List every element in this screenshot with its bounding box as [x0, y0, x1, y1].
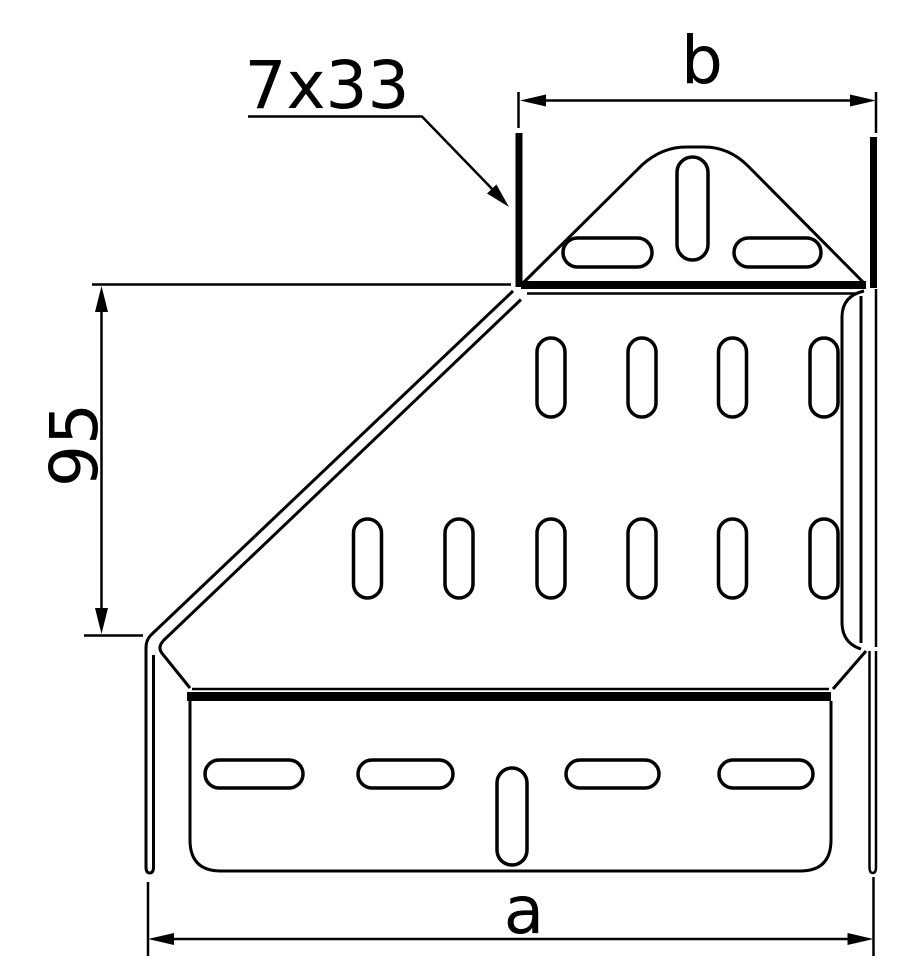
arrowhead-up-icon [95, 286, 108, 312]
callout-leader-line [248, 117, 497, 195]
bottom-flange [187, 689, 831, 871]
right-corner-joint [833, 651, 866, 689]
slot [719, 519, 747, 598]
arrowhead-left-icon [148, 933, 174, 945]
arrowhead-right-icon [848, 933, 874, 945]
dimension-slope-height: 95 [36, 285, 511, 636]
mounting-slot-horizontal [358, 760, 453, 788]
mounting-slot-horizontal [563, 238, 652, 267]
callout-slot-size-label: 7x33 [244, 47, 409, 124]
mounting-slot-horizontal [734, 238, 821, 267]
dimension-top-width-label: b [681, 22, 723, 99]
mounting-slot-horizontal [205, 760, 303, 788]
right-end-rail-edge [870, 651, 877, 873]
slot [445, 519, 473, 598]
slot [628, 519, 656, 598]
dimension-bottom-width-label: a [504, 872, 544, 949]
mounting-slot-horizontal [566, 760, 659, 788]
dimension-top-width: b [519, 22, 877, 133]
mounting-slot-vertical [677, 157, 708, 260]
perforation-row-lower [354, 519, 839, 598]
arrowhead-left-icon [520, 95, 546, 107]
slot [719, 338, 747, 417]
slot [810, 338, 838, 417]
mounting-slot-horizontal [719, 760, 813, 788]
slot [537, 519, 565, 598]
slot [537, 338, 565, 417]
slot [810, 519, 838, 598]
mounting-slot-vertical [497, 768, 527, 865]
slot [354, 519, 382, 598]
dimension-bottom-width: a [148, 872, 874, 956]
callout-slot-size: 7x33 [244, 47, 509, 207]
slot [628, 338, 656, 417]
arrowhead-right-icon [850, 95, 876, 107]
arrowhead-down-icon [95, 608, 108, 634]
slope-fold-line [160, 300, 521, 689]
technical-drawing-page: 7x33 b 95 a [0, 0, 912, 973]
reducer-drawing: 7x33 b 95 a [0, 0, 912, 973]
perforation-row-upper [537, 338, 838, 417]
top-flange [519, 133, 874, 294]
